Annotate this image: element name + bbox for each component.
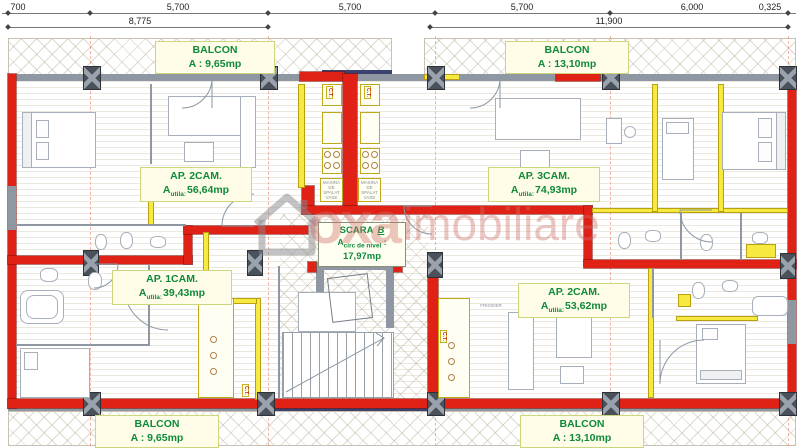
dishwasher-label: MASINA DE SPALAT VASE [358,181,381,201]
apartment-area: Autila:39,43mp [117,287,227,303]
balcon-area: A : 9,65mp [160,58,270,72]
floor-plan: 700 5,700 5,700 5,700 6,000 0,325 8,775 … [0,0,800,448]
label-ap1cam: AP. 1CAM. Autila:39,43mp [112,270,232,305]
balcon-area: A : 13,10mp [525,432,639,446]
balcon-area: A : 9,65mp [100,432,214,446]
label-balcon-top-left: BALCON A : 9,65mp [155,41,275,74]
door-arc [680,210,712,242]
dishwasher-label: MASINA DE SPALAT VASE [320,181,343,201]
label-balcon-bottom-right: BALCON A : 13,10mp [520,415,644,448]
door-arc [182,78,212,108]
apartment-title: AP. 2CAM. [145,170,247,184]
scara-area-value: 17,97mp [323,251,401,263]
balcon-title: BALCON [160,44,270,58]
door-arc [404,206,432,234]
stair-direction-arrow [286,333,384,392]
apartment-area: Autila:74,93mp [493,184,595,200]
scara-area-formula: Acirc de nivel : [323,237,401,251]
label-balcon-bottom-left: BALCON A : 9,65mp [95,415,219,448]
ct-label: C.T. [326,86,333,99]
balcon-title: BALCON [510,44,624,58]
apartment-area: Autila:53,62mp [523,300,625,316]
door-arc [470,78,500,108]
label-ap3cam: AP. 3CAM. Autila:74,93mp [488,167,600,202]
door-arc [660,340,704,384]
label-balcon-top-right: BALCON A : 13,10mp [505,41,629,74]
scara-title: SCARAB [323,225,401,237]
fridge-label: FRIGIDER [474,304,508,309]
ct-label: C.T. [364,86,371,99]
label-ap2cam-top: AP. 2CAM. Autila:56,64mp [140,167,252,202]
label-ap2cam-bottom: AP. 2CAM. Autila:53,62mp [518,283,630,318]
balcon-area: A : 13,10mp [510,58,624,72]
balcon-title: BALCON [100,418,214,432]
ct-label: C.T. [440,330,447,343]
apartment-area: Autila:56,64mp [145,184,247,200]
apartment-title: AP. 1CAM. [117,273,227,287]
apartment-title: AP. 3CAM. [493,170,595,184]
label-scara: SCARAB Acirc de nivel : 17,97mp [318,222,406,267]
balcon-title: BALCON [525,418,639,432]
elevator-car [327,274,372,323]
ct-label: C.T. [242,384,249,397]
apartment-title: AP. 2CAM. [523,286,625,300]
